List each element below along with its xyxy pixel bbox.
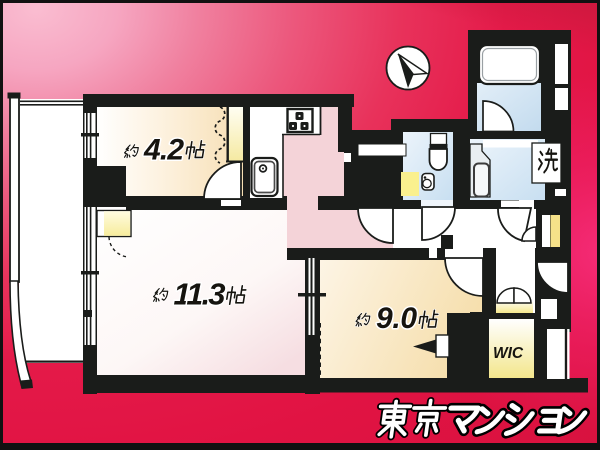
svg-text:WIC: WIC (493, 345, 524, 362)
svg-text:4.2: 4.2 (143, 134, 184, 167)
svg-text:11.3: 11.3 (174, 277, 226, 312)
svg-text:9.0: 9.0 (376, 302, 417, 335)
